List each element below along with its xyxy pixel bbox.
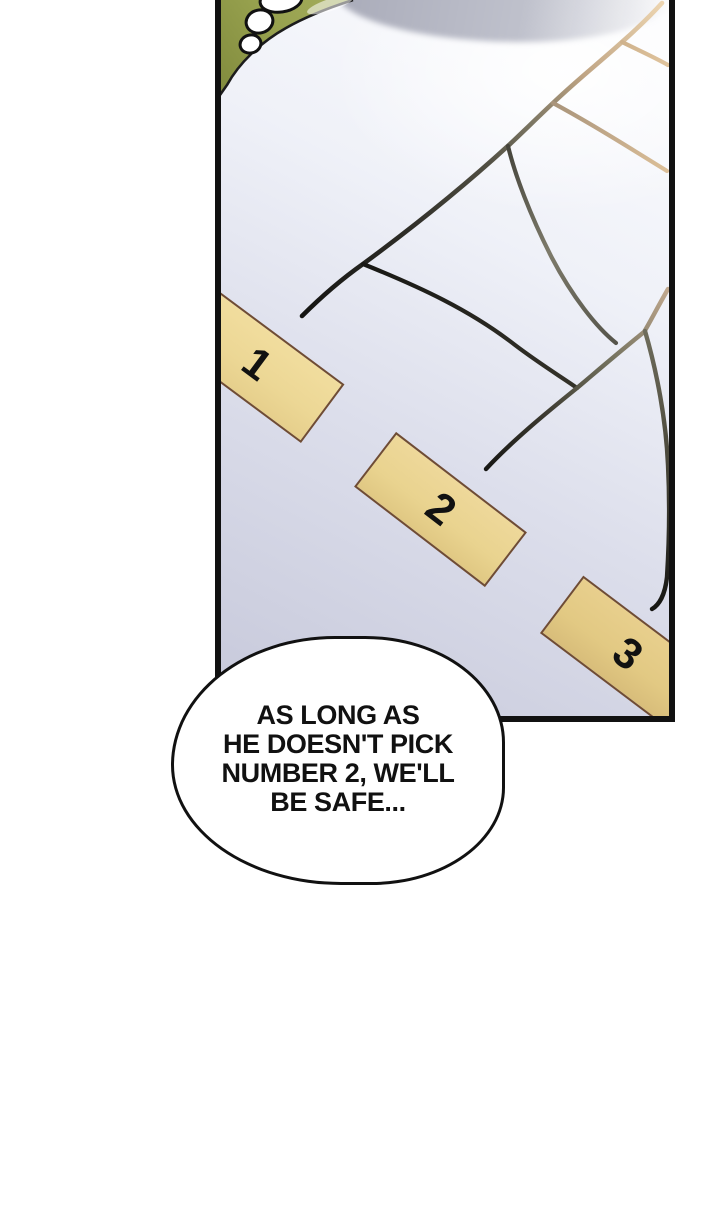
comic-page: 1 2 3 [0, 0, 720, 1205]
speech-line-2: HE DOESN'T PICK [222, 730, 455, 759]
ladder-diagram [221, 0, 669, 716]
speech-line-3: NUMBER 2, WE'LL [222, 759, 455, 788]
comic-panel: 1 2 3 [215, 0, 675, 722]
speech-line-4: BE SAFE... [222, 788, 455, 817]
speech-bubble-text: AS LONG AS HE DOESN'T PICK NUMBER 2, WE'… [222, 701, 455, 817]
ladder-rail-1 [302, 3, 662, 316]
ladder-rung-c [553, 103, 667, 171]
speech-bubble: AS LONG AS HE DOESN'T PICK NUMBER 2, WE'… [171, 636, 505, 885]
ladder-rung-a [363, 264, 577, 388]
speech-line-1: AS LONG AS [222, 701, 455, 730]
panel-content: 1 2 3 [221, 0, 669, 716]
ladder-rail-3 [645, 331, 669, 609]
ladder-rail-2 [486, 289, 668, 469]
ladder-rung-b [508, 146, 616, 343]
ladder-rung-d [622, 42, 668, 65]
